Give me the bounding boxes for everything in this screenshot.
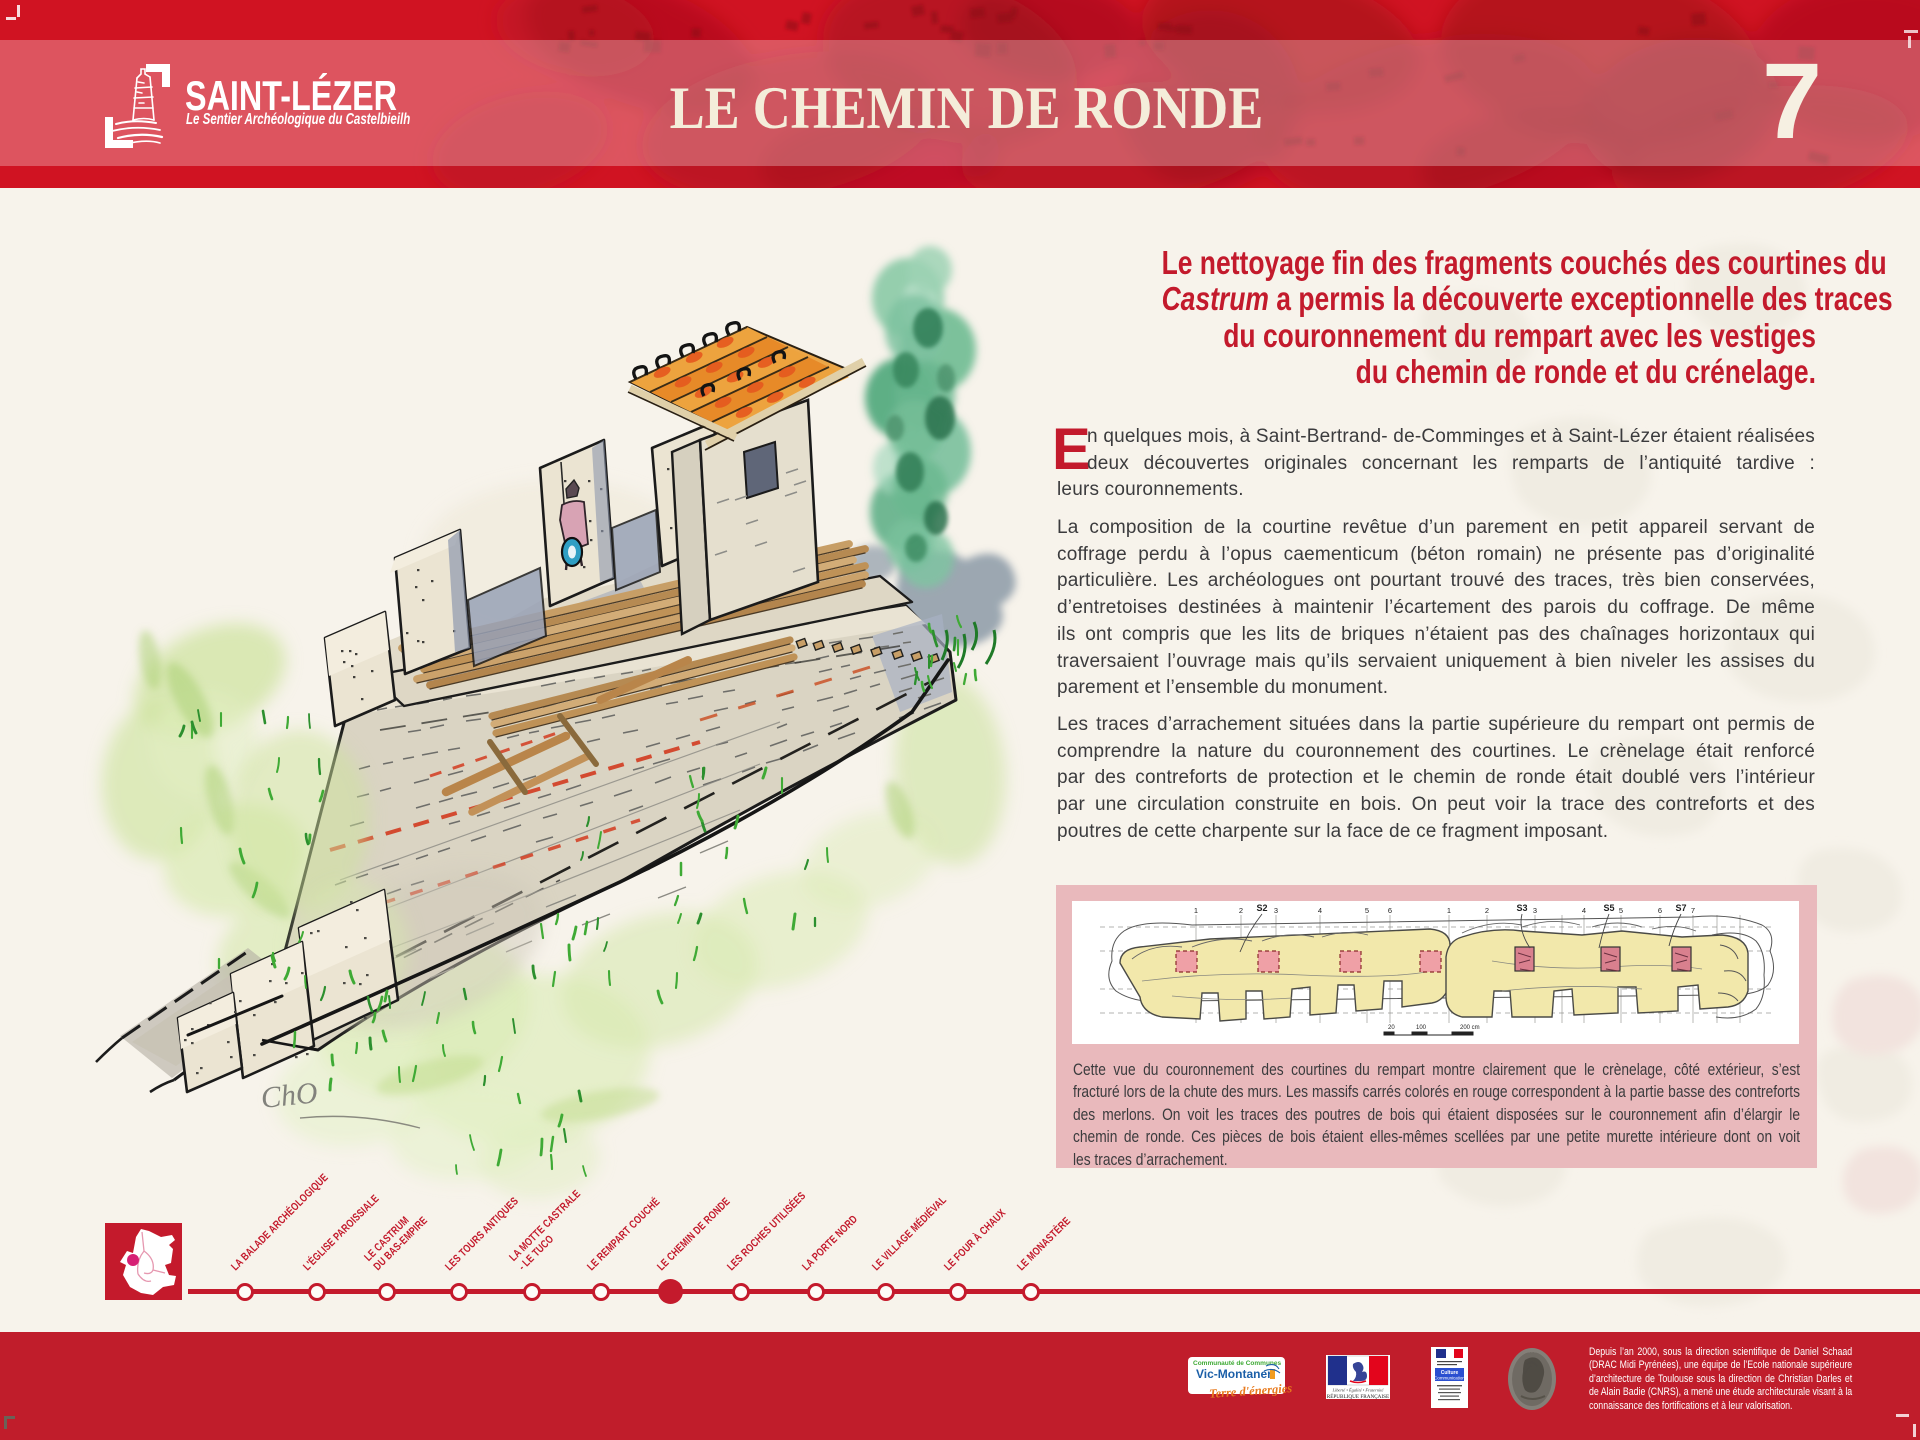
svg-text:100: 100 [1416, 1025, 1427, 1031]
svg-text:1: 1 [1194, 906, 1198, 915]
svg-text:Liberté • Égalité • Fraternité: Liberté • Égalité • Fraternité [1332, 1388, 1385, 1393]
svg-text:20: 20 [1388, 1025, 1395, 1031]
svg-text:2: 2 [1485, 906, 1489, 915]
svg-text:S3: S3 [1516, 903, 1527, 913]
svg-text:6: 6 [1658, 906, 1662, 915]
svg-text:4: 4 [1318, 906, 1322, 915]
svg-text:5: 5 [1619, 906, 1623, 915]
svg-text:2: 2 [1239, 906, 1243, 915]
svg-text:3: 3 [1274, 906, 1278, 915]
svg-text:Communication: Communication [1434, 1376, 1465, 1381]
svg-text:S2: S2 [1256, 903, 1267, 913]
svg-text:S5: S5 [1603, 903, 1614, 913]
svg-text:RÉPUBLIQUE FRANÇAISE: RÉPUBLIQUE FRANÇAISE [1327, 1392, 1389, 1399]
svg-text:4: 4 [1582, 906, 1586, 915]
svg-text:ChO: ChO [259, 1076, 319, 1115]
svg-text:S7: S7 [1675, 903, 1686, 913]
svg-text:200 cm: 200 cm [1460, 1025, 1480, 1031]
svg-text:1: 1 [1447, 906, 1451, 915]
svg-text:3: 3 [1533, 906, 1537, 915]
svg-text:7: 7 [1691, 906, 1695, 915]
svg-text:6: 6 [1388, 906, 1392, 915]
svg-text:5: 5 [1365, 906, 1369, 915]
svg-text:· · ·: · · · [1528, 1351, 1536, 1356]
